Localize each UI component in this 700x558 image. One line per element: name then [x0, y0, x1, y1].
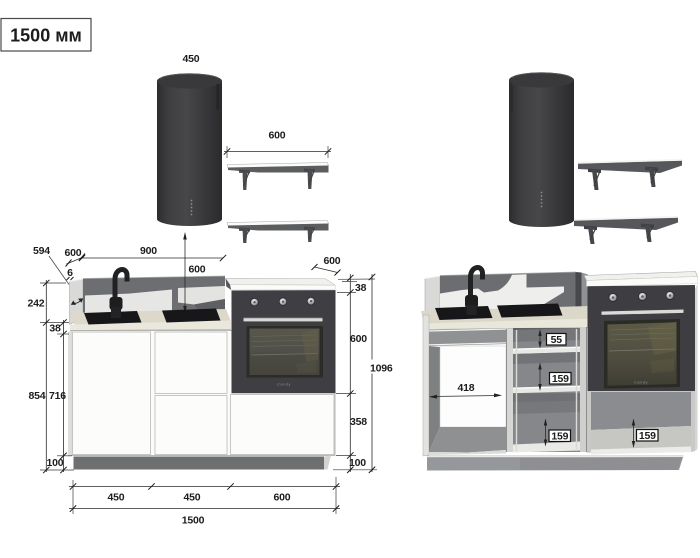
svg-text:100: 100 — [349, 457, 366, 469]
svg-text:450: 450 — [184, 492, 201, 504]
svg-text:600: 600 — [189, 264, 206, 276]
svg-text:600: 600 — [324, 255, 341, 267]
svg-text:854: 854 — [29, 390, 46, 402]
svg-text:716: 716 — [49, 390, 66, 402]
svg-text:594: 594 — [33, 245, 50, 257]
svg-text:600: 600 — [65, 247, 82, 259]
svg-text:600: 600 — [269, 130, 286, 142]
svg-text:Candy: Candy — [634, 380, 648, 385]
svg-text:159: 159 — [639, 430, 656, 442]
svg-text:242: 242 — [28, 298, 45, 310]
svg-text:900: 900 — [140, 245, 157, 257]
svg-text:100: 100 — [47, 457, 64, 469]
svg-text:450: 450 — [183, 53, 200, 65]
svg-text:1096: 1096 — [370, 363, 393, 375]
svg-text:38: 38 — [355, 282, 367, 294]
svg-text:450: 450 — [108, 492, 125, 504]
svg-text:159: 159 — [551, 430, 568, 442]
svg-text:6: 6 — [67, 267, 73, 279]
svg-text:1500: 1500 — [182, 515, 205, 527]
svg-text:600: 600 — [350, 333, 367, 345]
svg-text:418: 418 — [458, 382, 475, 394]
svg-text:600: 600 — [274, 492, 291, 504]
svg-text:159: 159 — [552, 373, 569, 385]
svg-text:1500 мм: 1500 мм — [10, 26, 82, 46]
svg-text:55: 55 — [551, 334, 563, 346]
svg-text:Candy: Candy — [277, 382, 291, 387]
svg-text:358: 358 — [350, 416, 367, 428]
svg-text:38: 38 — [49, 323, 61, 335]
